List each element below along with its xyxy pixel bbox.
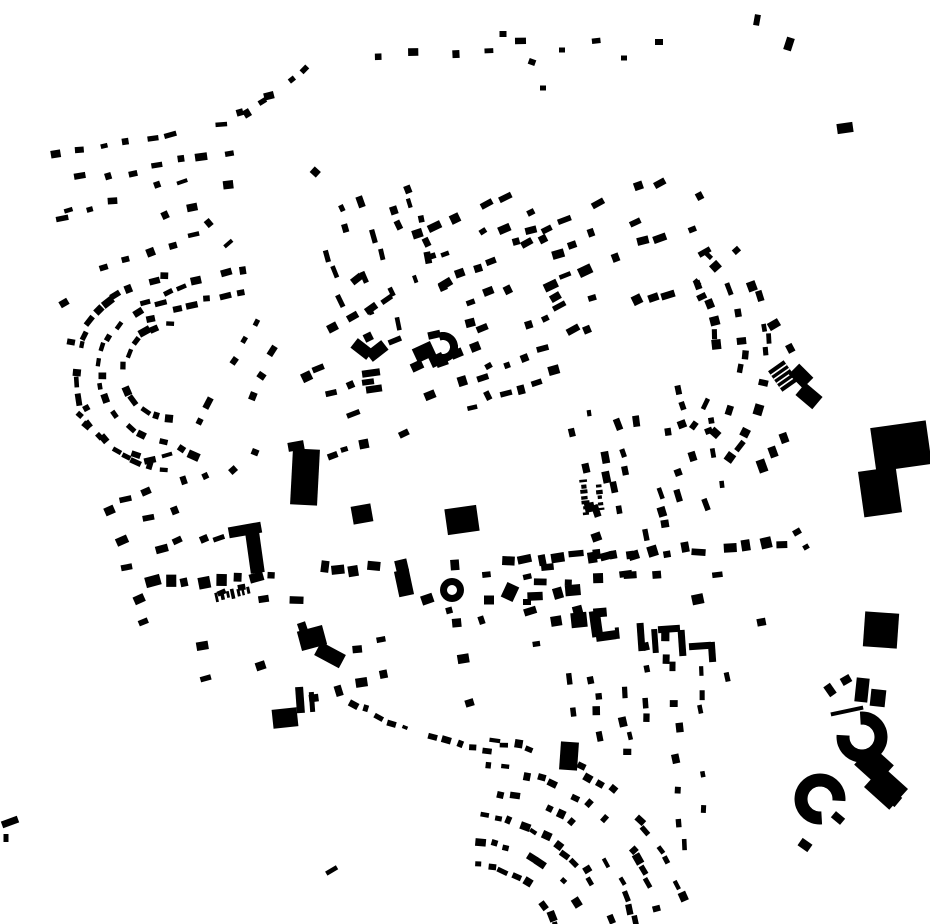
building-footprint [709, 315, 721, 326]
building-footprint [484, 362, 493, 370]
building-footprint [657, 487, 665, 499]
building-footprint [170, 505, 180, 515]
building-footprint [485, 257, 497, 266]
building-footprint [326, 321, 339, 333]
building-footprint [380, 294, 393, 305]
building-footprint [376, 636, 386, 643]
building-footprint [79, 341, 85, 349]
building-footprint [568, 428, 576, 438]
building-footprint [756, 458, 769, 473]
building-footprint [422, 237, 432, 248]
building-footprint [403, 184, 412, 194]
building-footprint [559, 741, 579, 770]
building-footprint [423, 389, 436, 401]
building-footprint [395, 317, 402, 331]
building-footprint [163, 288, 174, 297]
building-footprint [627, 731, 633, 740]
building-footprint [410, 359, 425, 372]
building-footprint [596, 731, 604, 742]
building-footprint [190, 276, 202, 286]
building-footprint [369, 229, 378, 244]
building-footprint [213, 534, 226, 543]
building-footprint [325, 865, 338, 875]
building-footprint [366, 384, 383, 393]
building-footprint [96, 358, 101, 367]
building-footprint [444, 505, 479, 535]
building-footprint [187, 449, 201, 461]
building-footprint [160, 210, 170, 220]
building-footprint [678, 630, 687, 656]
building-footprint [661, 632, 669, 641]
building-footprint [538, 900, 549, 911]
building-footprint [245, 532, 264, 574]
building-footprint [457, 653, 470, 664]
building-footprint [267, 345, 278, 358]
building-footprint [452, 618, 462, 627]
building-footprint [338, 204, 345, 212]
building-footprint [346, 311, 359, 323]
building-footprint [560, 877, 567, 884]
building-footprint [753, 14, 761, 26]
building-footprint [346, 380, 356, 390]
building-footprint [310, 166, 321, 177]
building-footprint [196, 641, 209, 651]
building-footprint [870, 420, 930, 471]
building-footprint [662, 855, 670, 864]
building-footprint [177, 444, 186, 453]
building-footprint [523, 573, 532, 580]
building-footprint [724, 672, 731, 682]
building-footprint [511, 872, 522, 881]
building-footprint [517, 554, 532, 565]
building-footprint [576, 761, 586, 770]
building-footprint [551, 248, 565, 260]
building-footprint [525, 225, 538, 235]
building-footprint [737, 363, 744, 373]
building-footprint [543, 279, 559, 293]
building-footprint [358, 439, 369, 450]
building-footprint [567, 240, 577, 249]
building-footprint [854, 677, 869, 702]
building-footprint [154, 299, 167, 307]
building-footprint [616, 505, 623, 514]
building-footprint [652, 905, 661, 913]
building-footprint [362, 378, 375, 386]
building-footprint [545, 804, 554, 813]
building-footprint [164, 131, 177, 139]
building-footprint [127, 394, 138, 406]
building-footprint [64, 207, 74, 214]
building-footprint [152, 411, 160, 419]
building-footprint [272, 707, 299, 729]
building-footprint [290, 448, 320, 505]
building-footprint [592, 38, 601, 44]
building-footprint [67, 338, 76, 345]
building-footprint [673, 468, 682, 477]
building-footprint [671, 753, 680, 764]
building-footprint [531, 378, 543, 387]
building-footprint [675, 787, 681, 794]
building-footprint [758, 379, 769, 387]
building-footprint [566, 324, 581, 336]
building-footprint [362, 368, 381, 377]
building-footprint [596, 490, 603, 495]
building-footprint [74, 376, 79, 387]
building-footprint [732, 246, 741, 255]
building-footprint [566, 673, 573, 685]
building-footprint [593, 573, 603, 583]
building-footprint [136, 430, 147, 440]
building-footprint [836, 122, 853, 134]
building-footprint [660, 519, 669, 528]
building-footprint [56, 215, 69, 223]
building-footprint [104, 172, 112, 180]
building-footprint [653, 177, 666, 188]
building-footprint [498, 192, 513, 203]
building-footprint [646, 545, 659, 558]
building-footprint [549, 291, 562, 303]
building-footprint [587, 228, 596, 238]
building-footprint [675, 722, 683, 732]
building-footprint [524, 745, 533, 753]
building-footprint [619, 448, 627, 458]
building-footprint [160, 272, 168, 279]
building-footprint [223, 180, 234, 190]
building-footprint [523, 606, 537, 617]
building-footprint [609, 481, 618, 493]
building-footprint [712, 571, 723, 578]
building-footprint [394, 220, 404, 231]
building-footprint [523, 772, 531, 781]
building-footprint [341, 223, 349, 233]
building-footprint [636, 235, 649, 245]
building-footprint [622, 687, 628, 699]
building-footprint [552, 587, 564, 600]
building-footprint [84, 315, 95, 327]
building-footprint [556, 808, 567, 819]
building-footprint [736, 337, 746, 345]
building-footprint [93, 304, 104, 315]
building-footprint [289, 596, 303, 604]
building-footprint [500, 389, 513, 397]
building-footprint [779, 432, 790, 444]
building-footprint [226, 591, 230, 598]
building-footprint [228, 465, 238, 475]
building-footprint [712, 329, 717, 339]
building-footprint [863, 611, 899, 648]
building-footprint [132, 307, 144, 318]
building-footprint [495, 815, 503, 821]
building-footprint [323, 250, 331, 263]
building-footprint [565, 584, 581, 596]
building-footprint [587, 294, 596, 302]
building-footprint [466, 298, 476, 306]
building-footprint [613, 418, 623, 431]
building-footprint [618, 716, 628, 727]
building-footprint [570, 612, 587, 629]
building-footprint [830, 706, 863, 717]
building-footprint [230, 589, 236, 600]
building-footprint [398, 428, 410, 438]
building-footprint [155, 544, 169, 555]
building-footprint [220, 268, 232, 278]
building-footprint [483, 390, 492, 401]
building-footprint [450, 559, 460, 570]
building-footprint [514, 739, 523, 748]
building-footprint [427, 733, 437, 741]
building-footprint [725, 405, 734, 416]
building-footprint [697, 705, 703, 714]
building-footprint [177, 155, 185, 163]
building-footprint [710, 448, 716, 458]
building-footprint [682, 839, 687, 850]
building-footprint [734, 440, 746, 453]
building-footprint [590, 531, 602, 542]
building-footprint [223, 239, 233, 249]
building-footprint [488, 863, 496, 870]
building-footprint [147, 135, 159, 142]
building-footprint [473, 264, 483, 274]
building-footprint [755, 290, 764, 302]
building-footprint [161, 452, 172, 459]
building-footprint [72, 369, 81, 377]
building-footprint [480, 198, 494, 209]
building-footprint [142, 514, 154, 522]
building-footprint [251, 448, 260, 456]
building-footprint [394, 569, 414, 598]
building-footprint [256, 371, 266, 381]
building-footprint [592, 706, 600, 715]
building-footprint [600, 814, 609, 823]
building-footprint [98, 342, 105, 352]
building-footprint [582, 325, 592, 335]
building-footprint [767, 318, 781, 331]
building-footprint [98, 372, 106, 379]
building-footprint [831, 811, 845, 825]
building-footprint [546, 778, 558, 788]
building-footprint [482, 571, 491, 578]
building-footprint [516, 384, 525, 395]
building-footprint [584, 798, 594, 808]
building-footprint [484, 48, 493, 53]
building-footprint [708, 642, 716, 662]
building-footprint [673, 880, 681, 890]
building-footprint [288, 76, 296, 84]
building-footprint [663, 550, 671, 558]
building-footprint [195, 152, 208, 161]
building-footprint [449, 212, 462, 225]
building-footprint [609, 550, 618, 560]
building-footprint [870, 689, 887, 707]
building-footprint [440, 251, 449, 258]
building-footprint [267, 572, 275, 579]
building-footprint [622, 890, 631, 902]
building-footprint [591, 197, 605, 209]
arc-building [439, 336, 454, 358]
map-canvas [0, 0, 930, 924]
building-footprint [739, 427, 751, 439]
building-footprint [128, 170, 138, 178]
building-footprint [651, 629, 659, 653]
building-footprint [237, 289, 245, 296]
building-footprint [700, 690, 705, 700]
building-footprint [1, 816, 19, 828]
building-footprint [75, 393, 83, 406]
building-footprint [523, 599, 531, 605]
house-clusters [50, 122, 795, 924]
building-footprint [480, 812, 489, 818]
building-footprint [795, 383, 822, 409]
building-footprint [678, 891, 689, 903]
building-footprint [352, 645, 362, 653]
building-footprint [452, 50, 459, 58]
building-footprint [669, 662, 675, 672]
building-footprint [121, 452, 131, 460]
building-footprint [121, 256, 130, 264]
building-footprint [82, 404, 90, 412]
building-footprint [242, 108, 252, 119]
building-footprint [100, 143, 108, 149]
building-footprint [475, 861, 481, 866]
building-footprint [704, 298, 715, 309]
donut-building-courtyard [447, 585, 457, 595]
building-footprint [100, 393, 110, 404]
building-footprint [783, 37, 795, 52]
building-footprint [582, 772, 593, 783]
building-footprint [386, 720, 396, 728]
building-footprint [104, 333, 112, 342]
building-footprint [330, 265, 339, 278]
building-footprint [253, 318, 260, 326]
building-footprint [420, 593, 434, 606]
building-footprint [126, 348, 133, 358]
building-footprint [159, 438, 168, 445]
building-footprint [701, 805, 706, 813]
building-footprint [724, 543, 737, 553]
building-footprint [637, 623, 646, 651]
building-footprint [663, 654, 670, 664]
building-footprint [240, 336, 248, 344]
building-footprint [631, 915, 639, 924]
building-footprint [840, 674, 853, 686]
building-footprint [595, 693, 602, 700]
building-footprint [598, 502, 603, 506]
building-footprint [623, 749, 631, 755]
building-footprint [639, 865, 649, 876]
building-footprint [529, 828, 537, 835]
building-footprint [378, 248, 385, 260]
building-footprint [741, 539, 751, 551]
building-footprint [496, 791, 504, 799]
building-footprint [176, 178, 188, 185]
building-footprint [634, 814, 646, 826]
building-footprint [482, 748, 492, 755]
building-footprint [129, 457, 142, 467]
building-footprint [300, 65, 310, 75]
building-footprint [643, 877, 653, 889]
building-footprint [632, 415, 640, 427]
building-footprint [145, 247, 156, 258]
building-footprint [362, 704, 369, 712]
building-footprint [97, 383, 103, 390]
building-footprint [602, 858, 610, 869]
building-footprint [567, 817, 576, 826]
building-footprint [197, 576, 211, 590]
building-footprint [477, 615, 485, 625]
building-footprint [719, 481, 724, 488]
building-footprint [557, 215, 572, 225]
building-footprint [200, 674, 212, 682]
building-footprint [133, 593, 146, 605]
building-footprint [541, 225, 553, 235]
building-footprint [565, 579, 572, 585]
building-footprint [99, 263, 109, 271]
building-footprint [312, 363, 325, 373]
building-footprint [478, 227, 487, 235]
building-footprint [484, 596, 494, 605]
building-footprint [577, 263, 594, 278]
building-footprint [587, 410, 592, 417]
building-footprint [172, 305, 182, 313]
building-footprint [402, 725, 408, 730]
building-footprint [320, 560, 329, 573]
building-footprint [629, 217, 642, 227]
building-footprint [172, 536, 183, 546]
building-footprint [351, 503, 374, 524]
building-footprint [375, 53, 382, 60]
building-footprint [619, 877, 627, 886]
building-footprint [785, 343, 795, 354]
building-footprint [75, 146, 84, 153]
building-footprint [502, 556, 515, 566]
building-footprint [553, 840, 564, 851]
building-footprint [670, 700, 678, 707]
building-footprint [522, 876, 533, 887]
building-footprint [658, 625, 680, 634]
building-footprint [691, 593, 705, 605]
building-footprint [500, 31, 507, 37]
building-footprint [110, 410, 119, 419]
building-footprint [408, 48, 418, 56]
building-footprint [179, 475, 187, 485]
building-footprint [587, 676, 595, 685]
building-footprint [138, 617, 149, 626]
building-footprint [331, 565, 345, 575]
building-footprint [201, 472, 209, 480]
building-footprint [501, 582, 520, 602]
building-footprint [709, 260, 722, 273]
building-footprint [325, 389, 337, 397]
building-footprint [119, 495, 132, 503]
building-footprint [199, 534, 209, 544]
building-footprint [763, 347, 769, 356]
building-footprint [534, 578, 547, 585]
building-footprint [80, 331, 89, 342]
building-footprint [491, 839, 499, 847]
building-footprint [625, 904, 633, 916]
building-footprint [642, 698, 648, 709]
building-footprint [149, 277, 161, 286]
building-footprint [643, 713, 649, 722]
building-footprint [652, 232, 667, 244]
building-footprint [520, 353, 530, 363]
building-footprint [153, 181, 161, 189]
building-footprint [229, 356, 238, 366]
building-footprint [219, 292, 232, 301]
building-footprint [802, 543, 810, 550]
building-footprint [570, 794, 580, 803]
building-footprint [579, 479, 587, 482]
